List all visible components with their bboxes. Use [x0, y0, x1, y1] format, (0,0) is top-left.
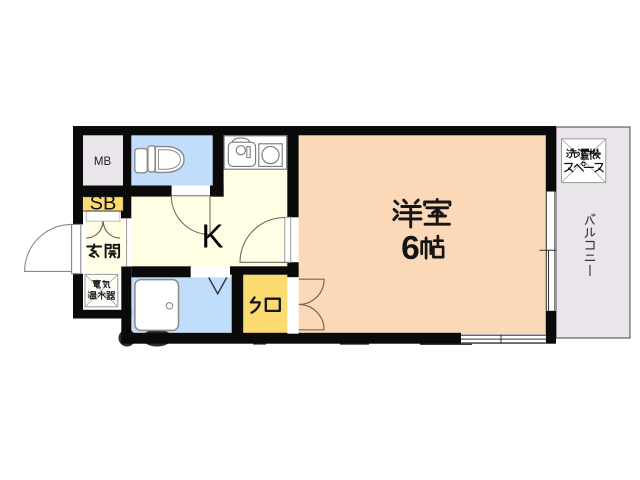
svg-text:MB: MB: [94, 156, 112, 168]
svg-text:6: 6: [401, 230, 420, 267]
svg-text:K: K: [201, 218, 223, 255]
svg-text:SB: SB: [90, 193, 117, 215]
